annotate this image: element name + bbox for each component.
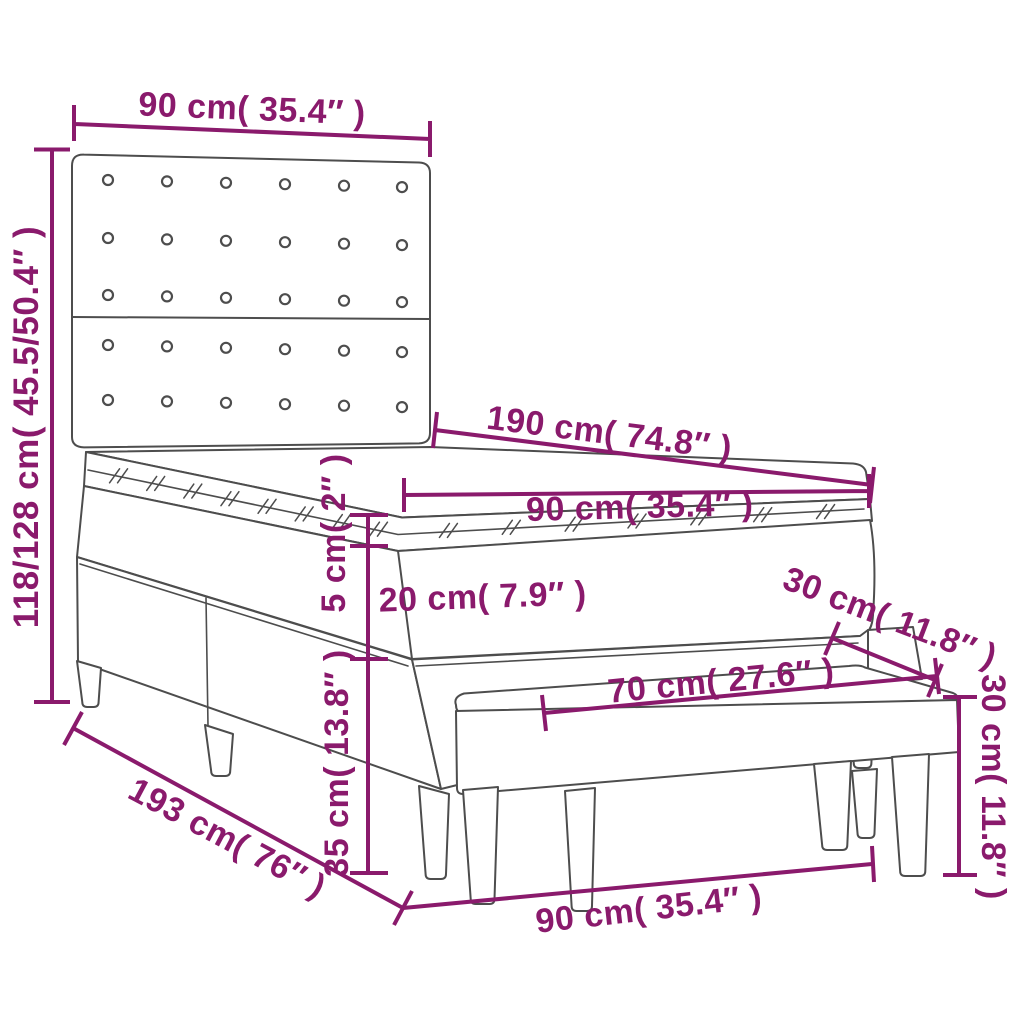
- bench-front-face: [456, 700, 959, 794]
- dim-bench-height-label: 30 cm( 11.8″ ): [974, 674, 1012, 900]
- dim-base-height-label: 35 cm( 13.8″ ): [318, 649, 356, 876]
- bed-dimension-diagram: 90 cm( 35.4″ ) 118/128 cm( 45.5/50.4″ ) …: [0, 0, 1024, 1024]
- bench-line-art: [455, 666, 959, 912]
- dim-mattress-width-label: 90 cm( 35.4″ ): [526, 485, 754, 529]
- bench-back-legs: [852, 769, 877, 838]
- dim-headboard-width-label: 90 cm( 35.4″ ): [138, 85, 367, 132]
- dim-mattress-thickness-label: 20 cm( 7.9″ ): [378, 574, 587, 619]
- dim-bed-length-label: 193 cm( 76″ ): [122, 770, 332, 906]
- headboard: [72, 155, 430, 448]
- bed-diagram-canvas: 90 cm( 35.4″ ) 118/128 cm( 45.5/50.4″ ) …: [0, 0, 1024, 1024]
- dim-overall-height-label: 118/128 cm( 45.5/50.4″ ): [7, 226, 46, 628]
- dim-topper-thickness-label: 5 cm( 2″ ): [315, 453, 353, 612]
